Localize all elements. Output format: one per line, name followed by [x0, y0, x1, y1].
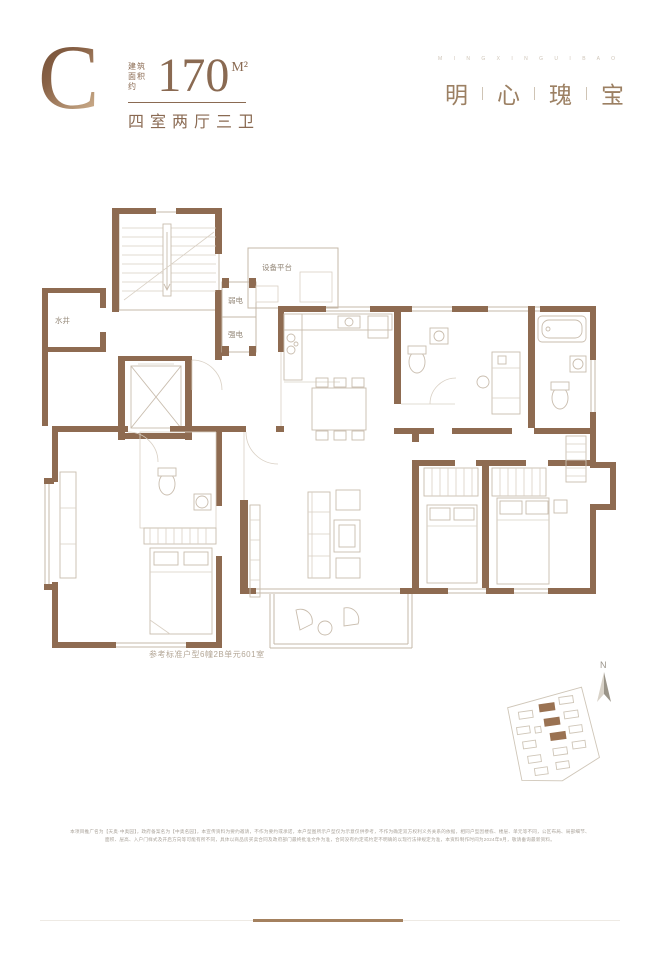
disclaimer: 本项目推广名为【天奥·中奥园】，政府备案名为【中奥名园】，本宣传资料为要约邀请，…: [70, 828, 590, 843]
kitchen: [284, 314, 392, 382]
compass-icon: N: [597, 660, 611, 702]
footer-divider-accent: [253, 919, 403, 922]
bedroom-right: [492, 436, 586, 584]
living-room: [250, 490, 360, 597]
weak-power-label: 弱电: [228, 295, 243, 305]
floor-plan: 水井 弱电 强电 设备平台: [0, 0, 660, 956]
power-closets: 弱电 强电: [222, 278, 256, 356]
disclaimer-line2: 面积、层高、入户门样式及开启方向等可能有所不同，具体以商品房买卖合同及政府部门最…: [70, 836, 590, 844]
balcony: [270, 594, 412, 648]
study-room: [477, 306, 535, 428]
equipment-platform: 设备平台: [248, 248, 338, 308]
bedroom-left: [44, 426, 222, 648]
water-well-label: 水井: [55, 315, 70, 325]
dining-table: [312, 378, 366, 440]
floorplan-poster: C 建筑 面积约 170 M² 四室两厅三卫 M I N G X I N G U…: [0, 0, 660, 956]
strong-power-label: 强电: [228, 329, 243, 339]
entry-hall: [192, 360, 284, 464]
staircase: [112, 208, 222, 360]
site-plan: [506, 686, 602, 787]
bedroom-mid: [424, 468, 478, 583]
master-bathroom: [538, 316, 586, 409]
compass-north-label: N: [600, 660, 607, 670]
equipment-platform-label: 设备平台: [262, 262, 292, 272]
guest-bathroom: [394, 306, 456, 404]
disclaimer-line1: 本项目推广名为【天奥·中奥园】，政府备案名为【中奥名园】，本宣传资料为要约邀请，…: [70, 828, 590, 836]
plan-caption: 参考标准户型6幢2B单元601室: [149, 649, 265, 660]
water-well-room: 水井: [42, 288, 106, 426]
